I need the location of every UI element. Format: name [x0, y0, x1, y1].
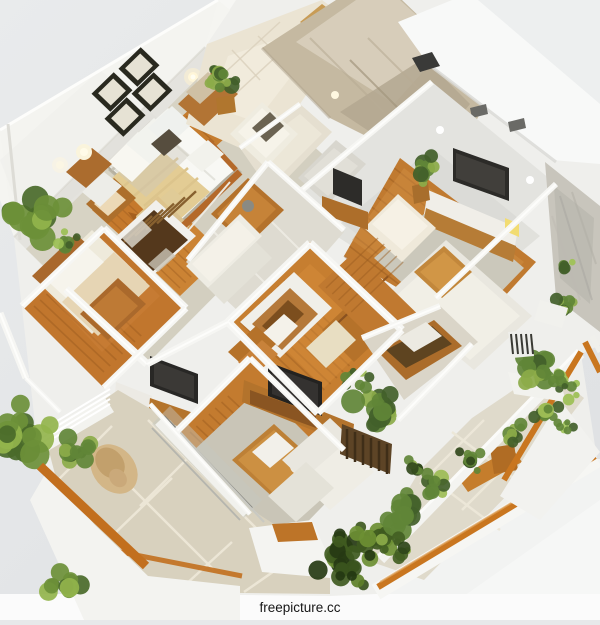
svg-text:freepicture.cc: freepicture.cc — [259, 600, 340, 615]
